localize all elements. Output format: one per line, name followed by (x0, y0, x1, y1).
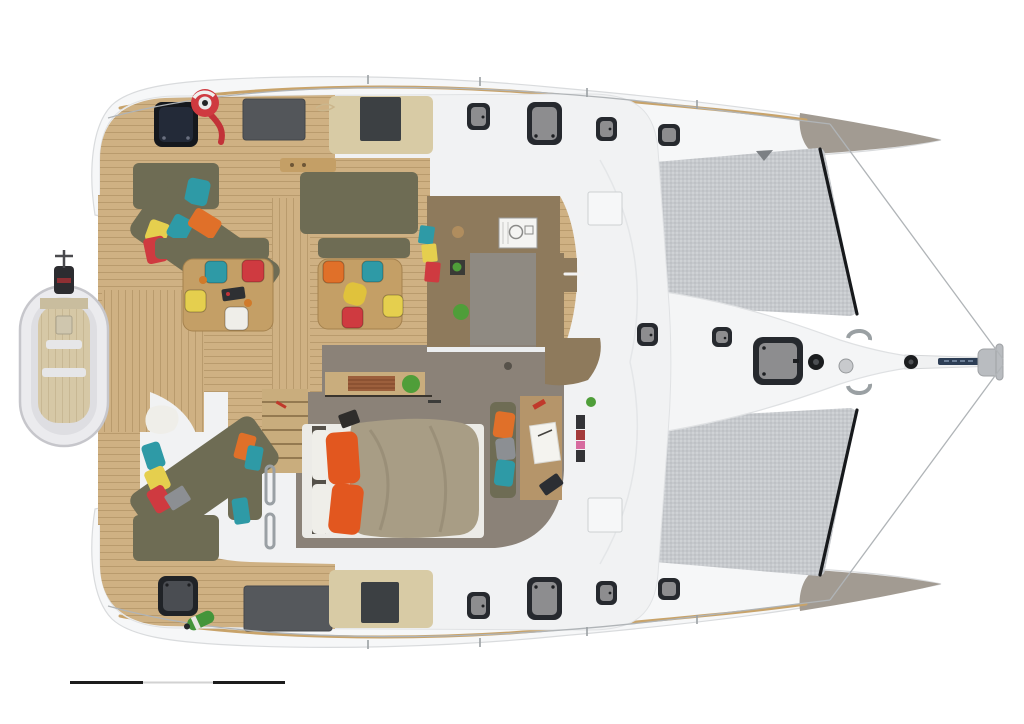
settee-pillow-teal (493, 459, 515, 487)
catamaran-floorplan (0, 0, 1024, 724)
stool-red (342, 307, 363, 328)
salon-hatch-port (154, 102, 198, 147)
towel-red (424, 261, 441, 282)
stool-red (242, 260, 264, 282)
orange-pillow-2 (327, 482, 364, 535)
stool-yellow (185, 290, 206, 312)
scale-segment-3 (213, 681, 285, 684)
salon-sofa-fwd (300, 172, 418, 234)
table-fruit-2 (244, 299, 252, 307)
bench-behind-table-stbd (318, 238, 410, 258)
stool-teal (205, 261, 227, 283)
salon-hatch-stbd (158, 576, 198, 616)
galley-counter-top (427, 196, 560, 253)
stool-orange (323, 261, 344, 283)
cockpit-window-bottom (244, 586, 332, 631)
settee-pillow-orange (492, 411, 515, 440)
salon-shelf (280, 158, 336, 172)
galley-wall-sliver (427, 347, 564, 352)
wall-latch (428, 400, 441, 403)
dinghy-seat-2 (42, 368, 86, 377)
bridle-shackle-lower (848, 384, 870, 393)
dinghy-seat-1 (46, 340, 82, 349)
settee-pillow-gray (495, 437, 516, 461)
outboard-engine (54, 250, 74, 294)
orange-pillow-1 (325, 431, 361, 485)
desk-papers (529, 422, 560, 463)
towel-yellow (421, 243, 438, 262)
outlined-hatch-top (588, 192, 622, 225)
outlined-hatch-bottom (588, 498, 622, 532)
galley-floor (468, 253, 536, 347)
tan-panel-top-window (360, 97, 401, 141)
shelf-knob-1 (290, 163, 294, 167)
dining-table-stbd (318, 259, 403, 329)
cutting-board (452, 226, 464, 238)
stool-teal (362, 261, 383, 282)
sprit-cleat-hub (909, 360, 914, 365)
dinghy-console (56, 316, 72, 334)
scale-segment-1 (70, 681, 143, 684)
shelf-knob-2 (302, 163, 306, 167)
radio-dot (226, 292, 230, 296)
windlass (839, 359, 853, 373)
dinghy-transom (40, 298, 88, 309)
master-bed-duvet (350, 419, 479, 538)
galley-sink-unit (499, 218, 537, 248)
bow-crossbar (996, 344, 1003, 380)
dinghy (20, 250, 108, 446)
white-pillow-2 (312, 484, 330, 534)
framed-plant-leaf (453, 263, 462, 272)
tan-panel-bottom-window (361, 582, 399, 623)
dining-table-port (183, 259, 273, 331)
aft-sofa (133, 515, 219, 561)
bench-behind-table-port (155, 238, 269, 259)
table-fruit-1 (199, 276, 207, 284)
stool-white (225, 307, 248, 330)
bridle-shackle-upper (848, 331, 870, 340)
bridle-port (830, 124, 1003, 359)
render-canvas (0, 0, 1024, 724)
bow-cleat-hub (813, 359, 819, 365)
scale-bar (70, 681, 285, 684)
bridle-starboard (830, 365, 1003, 600)
nav-plant (586, 397, 596, 407)
stool-yellow (383, 295, 403, 317)
scale-segment-2 (143, 682, 213, 684)
book-shelf-strip (576, 415, 585, 462)
cockpit-window-top (243, 99, 305, 140)
roof-vent (504, 362, 512, 370)
towel-teal (418, 225, 435, 245)
sideboard-plant (402, 375, 420, 393)
galley-plant (453, 304, 469, 320)
white-towel (145, 405, 178, 434)
